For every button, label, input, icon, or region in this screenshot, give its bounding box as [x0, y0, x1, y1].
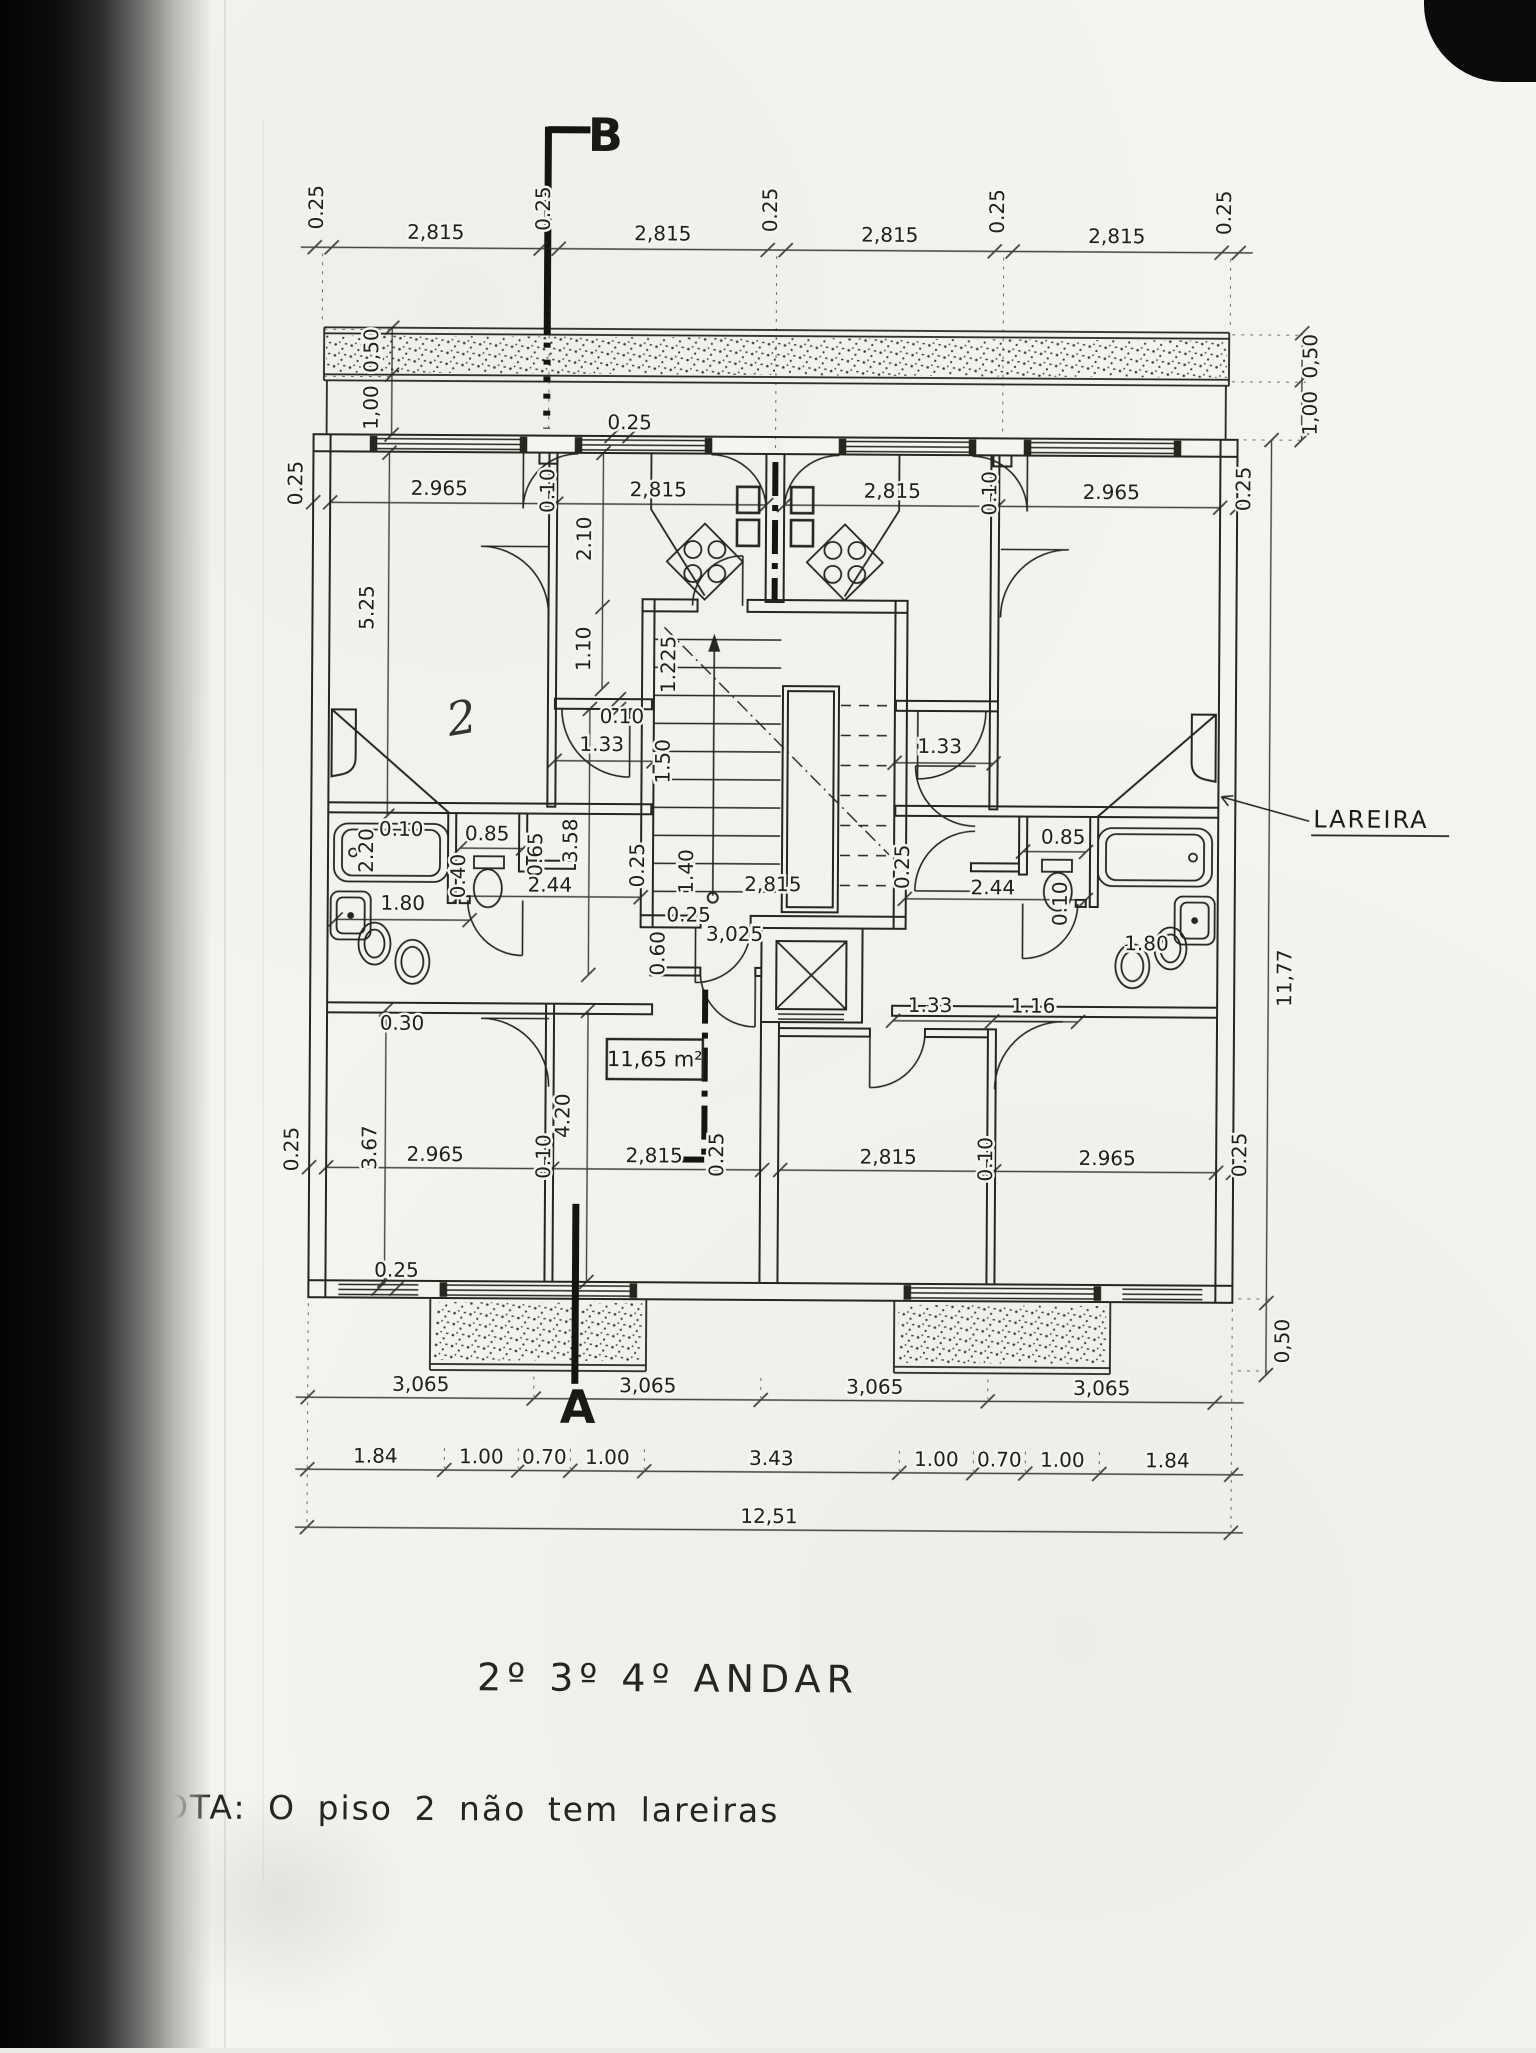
dimension-label: 0.85 — [1041, 825, 1086, 849]
dimension-label: 0.10 — [973, 1137, 997, 1182]
scan-streak — [262, 120, 264, 1881]
dimension-label: 2.965 — [1083, 480, 1140, 504]
section-marker-a: A — [560, 1380, 596, 1434]
dimension-label: 0,50 — [359, 328, 383, 373]
sink-left — [737, 487, 759, 513]
stove-right — [807, 524, 883, 600]
dimension-label: 0.10 — [379, 817, 424, 841]
dimension-label: 1.33 — [579, 732, 624, 756]
dimension-label: 1,00 — [359, 385, 383, 430]
dimension-label: 2,815 — [407, 220, 464, 244]
handwritten-mark: 2 — [442, 689, 481, 747]
window-bottom-right — [904, 1286, 1100, 1300]
dimension-label: 0.10 — [977, 471, 1001, 516]
dimension-label: 1.00 — [459, 1444, 504, 1468]
scan-streak — [224, 0, 226, 2048]
scan-edge-shadow — [0, 0, 212, 2048]
dimension-label: 0.25 — [1231, 467, 1255, 512]
dimension-label: 0.10 — [535, 468, 559, 513]
dimension-label: 1.80 — [380, 891, 425, 915]
dimension-label: 0.25 — [1212, 190, 1236, 235]
dimension-label: 0.25 — [374, 1258, 419, 1282]
dimension-label: 2.965 — [1078, 1146, 1135, 1170]
dimension-label: 1.16 — [1011, 993, 1056, 1017]
fireplace-left — [331, 709, 450, 813]
dimension-label: 3.67 — [357, 1125, 381, 1170]
dimension-label: 0.25 — [704, 1132, 728, 1177]
window-bottom-small-right — [1120, 1287, 1204, 1301]
dimension-label: 2,815 — [1088, 224, 1145, 248]
dimension-label: 2,815 — [630, 477, 687, 501]
dimension-label: 0,50 — [1298, 334, 1322, 379]
area-label: 11,65 m² — [607, 1047, 703, 1072]
fireplace-right — [1097, 714, 1216, 818]
window-top-2 — [575, 438, 711, 453]
dimension-label: 0.25 — [531, 186, 555, 231]
dimension-label: 0.25 — [304, 185, 328, 230]
section-marker-b: B — [588, 108, 623, 162]
wc-tank-left — [474, 856, 504, 868]
dimension-label: 0.70 — [522, 1445, 567, 1469]
sink-right — [791, 487, 813, 513]
dimension-label: 0.25 — [279, 1127, 303, 1172]
lareira-label: LAREIRA — [1313, 805, 1429, 834]
dimension-label: 0.25 — [666, 902, 711, 926]
dimension-label: 0.25 — [985, 189, 1009, 234]
dimension-label: 1.50 — [650, 739, 674, 784]
dimension-label: 2.44 — [528, 873, 573, 897]
drawing-title: 2º 3º 4º ANDAR — [477, 1655, 859, 1701]
dimension-label: 2.965 — [411, 476, 468, 500]
wc-tank-right — [1042, 860, 1072, 872]
dimension-label: 0.85 — [465, 821, 510, 845]
dimension-label: 1,00 — [1298, 391, 1322, 436]
dimension-label: 2,815 — [744, 872, 801, 896]
dimension-label: 0.10 — [1048, 881, 1072, 926]
dimension-label: 0.25 — [890, 844, 914, 889]
dimension-label: 1.33 — [917, 734, 962, 758]
dimension-label: 3,065 — [1073, 1376, 1130, 1400]
balcony-bottom-right — [894, 1301, 1110, 1374]
elevator-x — [776, 941, 846, 1009]
dimension-label: 0.30 — [380, 1011, 425, 1035]
dimension-label: 4.20 — [550, 1093, 574, 1138]
dimension-label: 0.25 — [607, 410, 652, 434]
dimension-label: 3,065 — [846, 1374, 903, 1398]
dimension-label: 2.44 — [971, 875, 1016, 899]
dimension-label: 0.25 — [625, 843, 649, 888]
dimension-label: 1.00 — [585, 1445, 630, 1469]
bathtub-right — [1098, 828, 1212, 887]
window-bottom-left — [440, 1283, 636, 1297]
dimension-label: 3.58 — [558, 818, 582, 863]
dimension-label: 0.25 — [283, 461, 307, 506]
elevator — [761, 928, 863, 1023]
balcony-bottom-left — [430, 1298, 646, 1371]
dimension-label: 1.84 — [353, 1443, 398, 1467]
window-top-3 — [839, 439, 975, 454]
dimension-label: 3,065 — [392, 1372, 449, 1396]
dimension-label: 2.20 — [354, 828, 378, 873]
dimension-label: 0.60 — [645, 931, 669, 976]
dimension-label: 1.00 — [914, 1447, 959, 1471]
stair-direction-arrow — [713, 648, 715, 896]
dimension-label: 3.43 — [749, 1446, 794, 1470]
dimension-label: 1.10 — [571, 627, 595, 672]
stove-left — [667, 523, 743, 599]
dimension-label: 1.40 — [674, 849, 698, 894]
window-top-4 — [1024, 441, 1180, 456]
dimension-label: 0.10 — [531, 1134, 555, 1179]
dimension-label: 2.965 — [406, 1142, 463, 1166]
dimension-label: 12,51 — [740, 1504, 797, 1528]
dimension-label: 0.25 — [758, 188, 782, 233]
dimension-label: 0.40 — [446, 854, 470, 899]
dimension-label: 0.10 — [600, 704, 645, 728]
dimension-label: 0.70 — [977, 1447, 1022, 1471]
lareira-underline — [1311, 835, 1449, 836]
dimension-label: 11,77 — [1272, 949, 1296, 1006]
dimension-label: 5.25 — [354, 585, 378, 630]
dimension-label: 1.84 — [1145, 1448, 1190, 1472]
dimension-label: 1.80 — [1124, 931, 1169, 955]
dimension-label: 0.25 — [1227, 1133, 1251, 1178]
floor-plan: B A LAREIRA 11,65 m² 2 0.252,8150.252,81… — [0, 0, 1536, 2053]
dimension-label: 2,815 — [861, 223, 918, 247]
dimension-label: 3,065 — [619, 1373, 676, 1397]
dimension-label: 2.10 — [572, 517, 596, 562]
dimension-label: 2,815 — [864, 479, 921, 503]
dimension-label: 3,025 — [706, 922, 763, 946]
dimension-label: 0.65 — [523, 832, 547, 877]
dimension-label: 1.33 — [908, 993, 953, 1017]
wc-toilet-left — [474, 869, 502, 907]
dimension-labels: 0.252,8150.252,8150.252,8150.252,8150.25… — [277, 185, 1323, 1532]
dimension-label: 2,815 — [634, 221, 691, 245]
dimension-label: 2,815 — [625, 1143, 682, 1167]
floor-plan-drawing: B A LAREIRA 11,65 m² 2 0.252,8150.252,81… — [0, 0, 1536, 2053]
dimension-label: 2,815 — [859, 1145, 916, 1169]
dimension-label: 0,50 — [1270, 1319, 1294, 1364]
dimension-label: 1.225 — [656, 636, 680, 693]
scanned-page: B A LAREIRA 11,65 m² 2 0.252,8150.252,81… — [0, 0, 1536, 2048]
dimension-label: 1.00 — [1040, 1448, 1085, 1472]
